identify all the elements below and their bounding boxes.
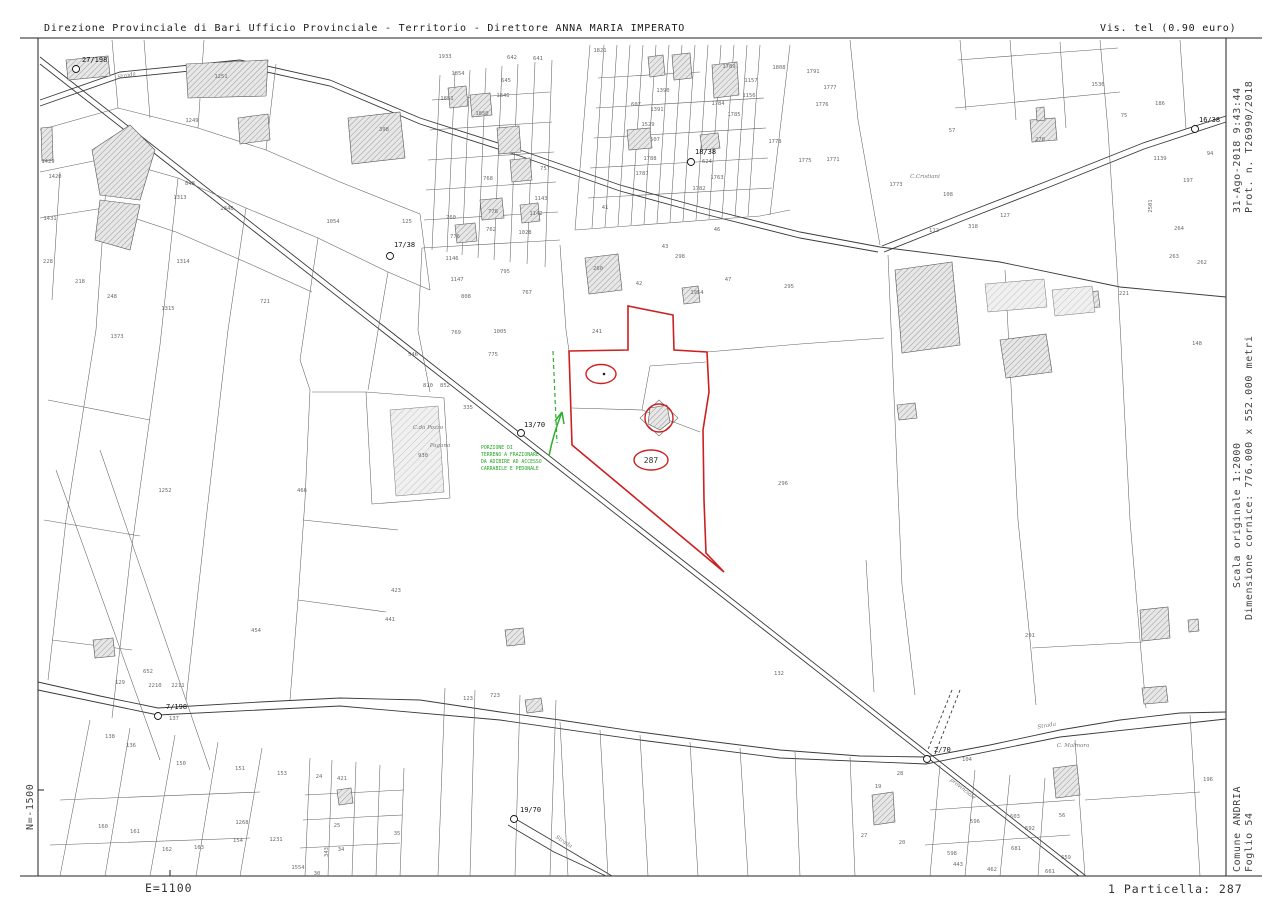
parcel-label: 136 (126, 743, 136, 749)
buildings (41, 53, 1199, 825)
locality-label: C. Malmora (1057, 743, 1090, 749)
parcel-label: 681 (1011, 846, 1021, 852)
parcel-label: 1139 (1153, 156, 1166, 162)
parcel-label: 160 (98, 824, 108, 830)
parcel-label: 661 (1045, 869, 1055, 875)
point-symbol (603, 373, 606, 376)
protocol-number: Prot. n. T26990/2018 (1244, 81, 1255, 213)
foglio-label: Foglio 54 (1244, 812, 1255, 872)
parcel-label: 125 (402, 219, 412, 225)
parcel-label: 852 (440, 383, 450, 389)
parcel-label: 1314 (176, 259, 190, 265)
parcel-label: 1054 (326, 219, 340, 225)
road-label: Strada (1037, 721, 1056, 730)
parcel-label: 20 (899, 840, 906, 846)
north-coordinate: N=-1500 (25, 784, 36, 830)
parcel-label: 335 (463, 405, 473, 411)
parcel-label: 1808 (772, 65, 785, 71)
parcel-label: 296 (778, 481, 788, 487)
parcel-label: 652 (143, 669, 153, 675)
parcel-label: 1252 (158, 488, 171, 494)
parcel-label: 94 (1207, 151, 1214, 157)
parcel-label: 263 (1169, 254, 1179, 260)
locality-label: C.Cristiani (910, 174, 940, 180)
parcel-label: 1954 (690, 290, 704, 296)
parcel-label: 443 (953, 862, 963, 868)
green-annotation (549, 351, 564, 456)
parcel-label: 108 (943, 192, 953, 198)
parcel-label: 291 (1025, 633, 1035, 639)
cadastral-map-extract: Direzione Provinciale di Bari Ufficio Pr… (0, 0, 1280, 908)
parcel-label: 1791 (806, 69, 819, 75)
map-canvas: Direzione Provinciale di Bari Ufficio Pr… (0, 0, 1280, 908)
parcel-label: 624 (702, 159, 713, 165)
parcel-label: 2210 (148, 683, 161, 689)
parcel-label: 1850 (475, 111, 488, 117)
parcel-label: 1420 (48, 174, 61, 180)
parcel-label: 603 (1010, 814, 1020, 820)
parcel-label: 1554 (291, 865, 305, 871)
particella-footer: 1 Particella: 287 (1108, 882, 1243, 896)
parcel-label: 454 (251, 628, 262, 634)
benchmark-label: 17/38 (394, 241, 415, 249)
parcel-label: 1851 (440, 96, 453, 102)
parcel-label: 1784 (711, 101, 725, 107)
road-branch-19-70 (508, 818, 612, 876)
parcel-label: 27 (861, 833, 868, 839)
parcel-label: 1787 (635, 171, 648, 177)
parcel-label: 645 (501, 78, 511, 84)
parcel-label: 607 (631, 102, 641, 108)
benchmark-circle (387, 253, 394, 260)
map-labels: 1249125139884813132348131413157211373105… (41, 48, 1220, 877)
parcel-label: 1146 (445, 256, 458, 262)
parcel-label: 1231 (269, 837, 282, 843)
parcel-label: 150 (176, 761, 186, 767)
parcel-label: 930 (418, 453, 428, 459)
parcel-label: 154 (233, 838, 244, 844)
parcel-label: 1268 (235, 820, 248, 826)
benchmark-label: 16/38 (1199, 116, 1220, 124)
parcel-label: 42 (636, 281, 643, 287)
header-title: Direzione Provinciale di Bari Ufficio Pr… (44, 23, 685, 34)
parcel-label: 642 (507, 55, 517, 61)
parcel-label: 57 (949, 128, 956, 134)
frame-dimension-label: Dimensione cornice: 776.000 x 552.000 me… (1244, 335, 1255, 620)
benchmark-label: 13/70 (524, 421, 545, 429)
parcel-label: 2211 (171, 683, 184, 689)
parcel-label: 1771 (826, 157, 839, 163)
parcel-label: 47 (725, 277, 732, 283)
parcel-label: 196 (1203, 777, 1213, 783)
east-coordinate: E=1100 (145, 881, 193, 895)
parcel-label: 295 (784, 284, 794, 290)
road-bottom (38, 682, 1226, 757)
parcel-label: 1373 (110, 334, 123, 340)
parcel-label: 810 (423, 383, 433, 389)
parcel-label: 641 (533, 56, 543, 62)
parcel-label: 129 (115, 680, 125, 686)
parcel-label: 776 (450, 234, 460, 240)
parcel-label: 848 (185, 181, 195, 187)
parcel-label: 1777 (823, 85, 836, 91)
parcel-label: 1854 (451, 71, 465, 77)
benchmark-label: 27/198 (82, 56, 107, 64)
parcel-label: 2348 (220, 206, 233, 212)
timestamp: 31-Ago-2018 9:43:44 (1232, 87, 1243, 213)
benchmark-circle (73, 66, 80, 73)
parcel-label: 1143 (534, 196, 547, 202)
parcel-label: 1773 (889, 182, 902, 188)
parcel-label: 1142 (529, 211, 542, 217)
subject-building (648, 405, 670, 430)
parcel-label: 56 (1059, 813, 1066, 819)
header: Direzione Provinciale di Bari Ufficio Pr… (44, 23, 1236, 34)
parcel-label: 41 (602, 205, 609, 211)
parcel-label: 260 (593, 266, 603, 272)
parcel-label: 264 (1174, 226, 1185, 232)
parcel-label: 2501 (1148, 199, 1154, 212)
parcel-label: 35 (394, 831, 401, 837)
parcel-label: 123 (463, 696, 473, 702)
parcel-label: 104 (962, 757, 973, 763)
parcel-label: 43 (662, 244, 669, 250)
comune-label: Comune ANDRIA (1232, 786, 1243, 872)
road-label: Strada (117, 71, 137, 81)
parcel-label: 343 (324, 847, 330, 857)
parcel-label: 30 (314, 871, 321, 877)
parcel-label: 28 (897, 771, 904, 777)
benchmark-label: 18/38 (695, 148, 716, 156)
parcel-label: 218 (75, 279, 85, 285)
parcel-label: 466 (297, 488, 307, 494)
parcel-label: 1147 (450, 277, 463, 283)
parcel-label: 248 (107, 294, 117, 300)
parcel-label: 1028 (518, 230, 531, 236)
parcel-label: 1390 (656, 88, 669, 94)
parcel-label: 1431 (43, 216, 56, 222)
parcel-label: 507 (650, 137, 660, 143)
parcel-label: 162 (162, 847, 172, 853)
benchmark-circle (518, 430, 525, 437)
parcel-label: 1315 (161, 306, 174, 312)
parcel-label: 153 (277, 771, 287, 777)
parcel-label: 778 (488, 209, 498, 215)
parcel-label: 769 (451, 330, 461, 336)
parcel-lines (40, 40, 1200, 876)
parcel-label: 775 (488, 352, 498, 358)
parcel-label: 1313 (173, 195, 186, 201)
parcel-label: 1005 (493, 329, 506, 335)
parcel-label: 596 (970, 819, 980, 825)
parcel-label: 127 (1000, 213, 1010, 219)
parcel-label: 760 (446, 215, 456, 221)
parcel-label: 398 (379, 127, 389, 133)
parcel-label: 723 (490, 693, 500, 699)
scale-label: Scala originale 1:2000 (1232, 442, 1243, 588)
parcel-label: 1846 (496, 93, 509, 99)
header-right: Vis. tel (0.90 euro) (1100, 23, 1236, 34)
parcel-label: 1789 (722, 64, 735, 70)
parcel-label: 659 (1061, 855, 1071, 861)
parcel-label: 1249 (185, 118, 198, 124)
parcel-label: 757 (540, 166, 550, 172)
parcel-label: 598 (947, 851, 957, 857)
parcel-label: 808 (461, 294, 471, 300)
parcel-label: 148 (1192, 341, 1202, 347)
green-annotation-text: TERRENO A FRAZIONARE (481, 452, 539, 458)
parcel-label: 1391 (650, 107, 663, 113)
parcel-label: 762 (486, 227, 496, 233)
parcel-label: 1778 (768, 139, 781, 145)
green-annotation-text: PORZIONE DI (481, 445, 513, 451)
locality-label: C.da Pozzo (413, 425, 444, 431)
parcel-label: 228 (43, 259, 53, 265)
parcel-label: 1775 (798, 158, 811, 164)
parcel-label: 768 (483, 176, 493, 182)
benchmark-label: 19/70 (520, 806, 541, 814)
benchmark-label: 7/198 (166, 703, 187, 711)
parcel-label: 1821 (593, 48, 606, 54)
parcel-label: 441 (385, 617, 395, 623)
parcel-label: 241 (592, 329, 602, 335)
parcel-label: 278 (1035, 137, 1045, 143)
parcel-label: 767 (522, 290, 532, 296)
parcel-label: 151 (235, 766, 245, 772)
parcel-label: 1529 (641, 122, 654, 128)
benchmark-label: 2/70 (934, 746, 951, 754)
green-annotation-text: CARRABILE E PEDONALE (481, 466, 539, 472)
parcel-label: 163 (194, 845, 204, 851)
red-ellipse-small (586, 365, 616, 384)
parcel-label: 592 (1025, 826, 1035, 832)
parcel-label: 24 (316, 774, 323, 780)
parcel-label: 138 (105, 734, 115, 740)
parcel-label: 262 (1197, 260, 1207, 266)
parcel-label: 112 (929, 228, 939, 234)
parcel-label: 221 (1119, 291, 1129, 297)
parcel-label: 186 (1155, 101, 1165, 107)
parcel-label: 137 (169, 716, 179, 722)
parcel-label: 25 (334, 823, 341, 829)
benchmark-circle (511, 816, 518, 823)
parcel-label: 1251 (214, 74, 227, 80)
parcel-label: 1156 (742, 93, 755, 99)
parcel-label: 546 (408, 352, 418, 358)
benchmark-circle (924, 756, 931, 763)
parcel-label: 1785 (727, 112, 740, 118)
green-annotation-text: DA ADIBIRE AD ACCESSO (481, 459, 542, 465)
parcel-label: 1157 (744, 78, 757, 84)
parcel-label: 1782 (692, 186, 705, 192)
parcel-label: 197 (1183, 178, 1193, 184)
parcel-label: 1776 (815, 102, 828, 108)
parcel-label: 34 (338, 847, 345, 853)
benchmark-circle (1192, 126, 1199, 133)
parcel-label: 298 (675, 254, 685, 260)
parcel-label: 1763 (710, 175, 723, 181)
benchmark-circle (688, 159, 695, 166)
parcel-label: 423 (391, 588, 401, 594)
benchmark-circle (155, 713, 162, 720)
parcel-label: 1429 (41, 159, 54, 165)
parcel-label: 421 (337, 776, 347, 782)
parcel-label: 19 (875, 784, 882, 790)
locality-label: Pagano (429, 443, 451, 449)
parcel-label: 161 (130, 829, 140, 835)
parcel-label: 75 (1121, 113, 1128, 119)
parcel-label: 795 (500, 269, 510, 275)
green-arrow-shaft (549, 412, 562, 456)
parcel-label: 1788 (643, 156, 656, 162)
parcel-label: 46 (714, 227, 721, 233)
track-dashed (927, 690, 960, 754)
parcel-label: 1536 (1091, 82, 1104, 88)
parcel-label: 132 (774, 671, 784, 677)
parcel-label: 721 (260, 299, 270, 305)
parcel-label: 462 (987, 867, 997, 873)
parcel-287-label: 287 (644, 456, 659, 465)
parcel-label: 1933 (438, 54, 451, 60)
parcel-label: 318 (968, 224, 978, 230)
